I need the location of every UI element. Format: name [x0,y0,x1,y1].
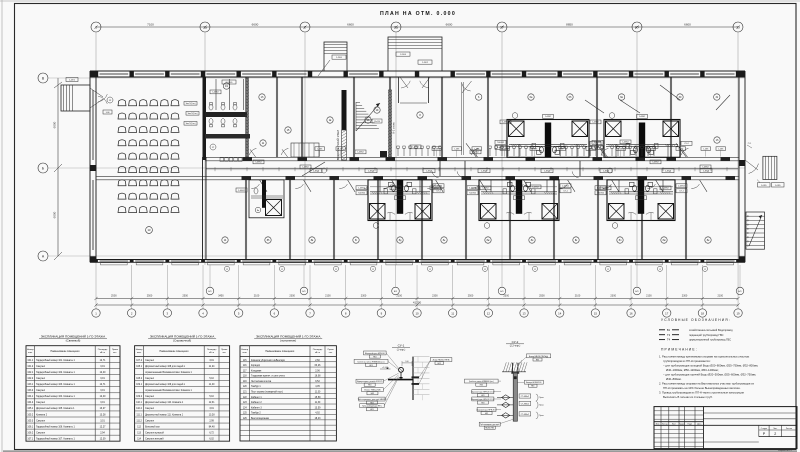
svg-text:Гребёнка литая НЛВ8000 (шт.): Гребёнка литая НЛВ8000 (шт.) [469,381,494,383]
svg-text:1-4Ф62: 1-4Ф62 [592,121,598,124]
svg-text:3. Провод трубопроводов из ПП: 3. Провод трубопроводов из ПП-Н через ст… [659,391,744,395]
svg-text:14: 14 [558,311,562,315]
svg-text:11,24: 11,24 [209,366,215,368]
svg-text:1а: 1а [203,26,207,30]
svg-text:1-4Ф6: 1-4Ф6 [454,147,459,150]
svg-text:Кол.уч: Кол.уч [662,423,668,425]
svg-text:Площадь: Площадь [207,349,217,351]
svg-text:12: 12 [429,269,431,271]
svg-text:1-4Ф62: 1-4Ф62 [622,141,628,144]
svg-text:2500: 2500 [468,294,474,297]
svg-text:НКЗ: НКЗ [373,356,376,358]
svg-text:хозяйственно-питьевой Водопров: хозяйственно-питьевой Водопровод [689,328,733,332]
svg-text:Номер: Номер [136,349,144,351]
svg-text:(2,3 черт.): (2,3 черт.) [510,346,521,348]
svg-text:6600: 6600 [446,22,453,26]
svg-text:Номер: Номер [27,349,35,351]
svg-text:СУ-2: СУ-2 [512,340,519,344]
svg-text:циркуляционный трубопровод ГВС: циркуляционный трубопровод ГВС [689,338,731,342]
svg-text:№док: №док [679,422,684,425]
svg-text:Приме: Приме [221,349,228,351]
svg-text:Туба нержавел. для труб НВ-810: Туба нержавел. для труб НВ-810 [358,399,387,401]
svg-text:1-4КкД: 1-4КкД [426,171,433,173]
svg-text:6,02: 6,02 [209,438,214,440]
svg-text:104.2: 104.2 [27,402,33,404]
svg-text:106.2: 106.2 [27,432,33,434]
svg-text:ПРИМЕЧАНИЕ:: ПРИМЕЧАНИЕ: [661,348,698,352]
svg-text:П-4Ф62: П-4Ф62 [597,192,605,195]
svg-text:2100: 2100 [325,294,331,297]
svg-text:1-4Ф6: 1-4Ф6 [703,147,708,150]
svg-text:107.1: 107.1 [27,438,33,440]
svg-text:1-4КкД: 1-4КкД [603,171,610,173]
svg-text:1-2Ф0: 1-2Ф0 [336,56,343,59]
svg-text:Санузел: Санузел [145,420,155,422]
svg-text:подающий трубопровод ГВС: подающий трубопровод ГВС [689,333,724,337]
svg-text:12: 12 [607,269,609,271]
svg-text:1-4Ф6: 1-4Ф6 [338,147,343,150]
svg-text:11: 11 [451,311,454,315]
svg-text:2100: 2100 [254,294,260,297]
svg-text:1-4Ф62: 1-4Ф62 [302,166,308,169]
svg-text:63,26: 63,26 [315,365,321,367]
svg-text:Зам.П (2 шт): Зам.П (2 шт) [186,123,196,125]
svg-text:19: 19 [736,26,740,30]
svg-text:11,30: 11,30 [315,402,321,404]
svg-text:Формат А1Х1: Формат А1Х1 [778,449,793,452]
svg-text:кВ. м: кВ. м [315,352,321,354]
svg-text:Двухместный номер 109 для люде: Двухместный номер 109 для людей с [145,383,186,386]
svg-text:3,01: 3,01 [100,402,105,404]
svg-text:2,94: 2,94 [100,432,105,434]
svg-text:1-4Ф62: 1-4Ф62 [392,187,398,190]
svg-text:1-0Ф5: 1-0Ф5 [761,184,767,187]
svg-text:2,06: 2,06 [315,370,320,372]
svg-text:102.2: 102.2 [27,378,33,380]
svg-text:НКЗ: НКЗ [369,365,372,367]
svg-text:19: 19 [736,311,740,315]
svg-text:1-4Ф62: 1-4Ф62 [358,187,366,190]
svg-text:10: 10 [415,311,419,315]
svg-text:(1 черт.): (1 черт.) [397,349,406,351]
svg-text:Тамбур 1: Тамбур 1 [251,386,261,388]
svg-text:1-4Ф62: 1-4Ф62 [238,189,246,192]
svg-text:1-4Ф62: 1-4Ф62 [482,187,488,190]
svg-text:Кабинет 3: Кабинет 3 [251,407,262,409]
svg-text:1-4КкД: 1-4КкД [703,171,710,173]
svg-text:2500: 2500 [503,294,509,297]
svg-text:трубопроводов из ПП-Н принимае: трубопроводов из ПП-Н принимается: [663,359,711,363]
svg-text:Номер: Номер [241,349,249,351]
svg-text:2100: 2100 [646,294,652,297]
svg-text:НКЗ: НКЗ [480,385,483,387]
svg-text:Фитинг НЛВ-0,7Ø0: Фитинг НЛВ-0,7Ø0 [364,389,380,392]
svg-text:Прим.: Прим. [539,397,545,399]
svg-text:Туба полипроп. для труб: Туба полипроп. для труб [480,424,499,426]
svg-text:12: 12 [226,269,228,271]
svg-text:Тамбур 2: Тамбур 2 [251,413,261,415]
svg-text:Наименование помещения: Наименование помещения [50,351,80,353]
svg-text:2-1Ф6: 2-1Ф6 [400,53,407,56]
svg-text:2300: 2300 [289,294,295,297]
svg-text:1-5Ф2: 1-5Ф2 [422,61,429,64]
svg-text:НВ-810 НКЗ: НВ-810 НКЗ [485,428,494,430]
svg-text:108.2: 108.2 [136,378,142,380]
svg-text:41200: 41200 [413,301,422,305]
svg-text:НКЗ: НКЗ [481,402,484,404]
svg-text:1-4Ф62: 1-4Ф62 [412,146,418,149]
svg-text:СТ-4Ф6х2: СТ-4Ф6х2 [521,402,529,405]
svg-text:12,39: 12,39 [100,438,106,440]
svg-text:12: 12 [372,269,374,271]
svg-text:4,92: 4,92 [315,413,320,415]
svg-text:109.1: 109.1 [136,384,142,386]
svg-text:Санузел: Санузел [36,420,46,422]
svg-text:П-4Ф62: П-4Ф62 [594,141,602,144]
svg-text:Санузел мужской: Санузел мужской [145,431,164,434]
svg-text:3,01: 3,01 [100,378,105,380]
svg-text:Приме: Приме [112,349,119,351]
svg-text:НКЗ: НКЗ [368,385,371,387]
svg-text:106.1: 106.1 [27,426,33,428]
svg-text:1-4Ф62: 1-4Ф62 [638,197,644,200]
svg-text:1. Расстояния между крепежными: 1. Расстояния между крепежными опорами н… [659,355,750,359]
svg-text:– для трубопроводов холодной: – для трубопроводов холодной Воды Ø20–80… [663,364,758,368]
svg-text:12: 12 [659,269,661,271]
svg-text:100: 100 [405,361,408,363]
svg-text:6600: 6600 [252,22,259,26]
svg-text:Гардеробный номер 104. Комнаты: Гардеробный номер 104. Комнаты 1 [36,395,75,398]
svg-text:Санузел женский: Санузел женский [145,437,164,440]
svg-text:Двухместный номер 105. Комната: Двухместный номер 105. Комната 1 [36,407,75,410]
svg-text:1-4Ф62: 1-4Ф62 [502,121,508,124]
svg-text:НКЗ: НКЗ [370,409,373,411]
svg-text:17: 17 [665,311,669,315]
svg-text:В1: В1 [667,328,671,332]
svg-text:7100: 7100 [147,22,154,26]
svg-text:Анкер НВ-810 ПЕЛЬ(у): Анкер НВ-810 ПЕЛЬ(у) [529,355,548,358]
svg-text:П-4Ф62: П-4Ф62 [469,192,477,195]
svg-text:110.1: 110.1 [136,402,142,404]
svg-text:пом.: пом. [242,352,247,354]
svg-text:2500: 2500 [539,294,545,297]
svg-text:12: 12 [335,269,337,271]
svg-text:(пояснение): (пояснение) [280,339,296,343]
svg-text:пом.: пом. [137,352,142,354]
svg-text:кВ. м: кВ. м [209,352,215,354]
svg-text:Прим.: Прим. [539,415,545,417]
svg-text:1-2Ф1: 1-2Ф1 [69,78,76,81]
svg-text:1-4Ф62: 1-4Ф62 [432,187,438,190]
svg-text:104.1: 104.1 [27,396,33,398]
svg-text:Прим.: Прим. [539,405,545,407]
svg-text:4,05: 4,05 [315,386,320,388]
svg-text:чан.: чан. [222,352,226,354]
svg-text:Санузел: Санузел [145,378,155,380]
svg-text:СУ-1: СУ-1 [398,344,405,348]
svg-text:13,59: 13,59 [315,407,321,409]
svg-text:Бельевой зал: Бельевой зал [145,425,160,428]
svg-text:Двухместный номер 108 для люде: Двухместный номер 108 для людей с [145,365,186,368]
svg-text:СТ-4Ф6х2: СТ-4Ф6х2 [521,395,529,398]
svg-text:Двухместный номер 110. Комната: Двухместный номер 110. Комната 1 [145,401,184,404]
svg-text:12,40: 12,40 [100,396,106,398]
svg-text:1-4Ф6: 1-4Ф6 [718,147,723,150]
svg-text:1-4КкД: 1-4КкД [313,171,320,173]
svg-text:8850: 8850 [566,22,573,26]
svg-text:Приме: Приме [328,349,335,351]
svg-text:103.2: 103.2 [27,390,33,392]
svg-text:6600: 6600 [684,22,691,26]
svg-text:(Справочной): (Справочной) [173,339,191,343]
svg-text:Пост охраны (пожарный пост): Пост охраны (пожарный пост) [251,390,283,393]
svg-text:15,59: 15,59 [315,397,321,399]
svg-text:8ж: 8ж [487,240,490,242]
svg-text:3,01: 3,01 [100,390,105,392]
svg-text:8м: 8м [663,240,666,242]
svg-text:105.2: 105.2 [27,414,33,416]
svg-text:16,08: 16,08 [315,376,321,378]
svg-text:2. Расстояния между опорами н: 2. Расстояния между опорами на Вертикаль… [659,382,755,386]
svg-text:2300: 2300 [682,294,688,297]
svg-text:Кабинет 2: Кабинет 2 [251,402,262,404]
svg-text:6,72: 6,72 [209,432,214,434]
svg-text:Коридор: Коридор [251,365,261,367]
svg-text:Ø40–800мм.: Ø40–800мм. [666,377,682,381]
svg-text:1-4КкД: 1-4КкД [481,171,488,173]
svg-text:Двухместный номер 111. Комната: Двухместный номер 111. Комната 1 [145,413,184,416]
svg-text:1-4Ф6: 1-4Ф6 [678,147,683,150]
svg-text:1-4Ф62: 1-4Ф62 [397,197,403,200]
svg-text:Санузел: Санузел [145,408,155,410]
svg-text:1-4КкД: 1-4КкД [368,171,375,173]
svg-text:Кабинет 1: Кабинет 1 [251,397,262,399]
svg-text:чан.: чан. [329,352,333,354]
svg-text:12: 12 [704,269,706,271]
svg-text:ограниченными Возможностями. К: ограниченными Возможностями. Комната 1 [145,372,192,374]
svg-text:Наименование помещения: Наименование помещения [159,351,189,353]
svg-text:6600: 6600 [347,22,354,26]
svg-text:3,01: 3,01 [100,420,105,422]
svg-text:19х150: 19х150 [374,121,380,123]
svg-text:1-4Ф62: 1-4Ф62 [472,151,478,154]
svg-text:1-4Ф62: 1-4Ф62 [469,187,477,190]
svg-text:13,27: 13,27 [100,408,106,410]
svg-text:8г: 8г [355,240,357,242]
svg-text:2300: 2300 [610,294,616,297]
svg-text:Лестничная клетка: Лестничная клетка [251,381,272,383]
svg-text:6000: 6000 [53,211,57,218]
svg-text:3,01: 3,01 [100,366,105,368]
svg-text:1-4Ф62: 1-4Ф62 [639,115,645,118]
svg-text:НКЗ: НКЗ [531,386,534,388]
svg-text:Санузел: Санузел [145,360,155,362]
svg-text:НКЗ: НКЗ [438,363,441,365]
svg-text:1-4Ф62: 1-4Ф62 [662,187,668,190]
svg-text:1-4Ф62: 1-4Ф62 [532,186,538,189]
svg-text:Санузел: Санузел [36,378,46,380]
svg-text:16: 16 [629,311,633,315]
svg-text:6000: 6000 [53,121,57,128]
svg-text:Гардеробный номер 102. Комнаты: Гардеробный номер 102. Комнаты 1 [36,371,75,374]
svg-text:111.1: 111.1 [136,414,142,416]
svg-text:84,48: 84,48 [209,426,215,428]
svg-text:Ø40–1000мм, Ø50–1200мм, Ø63–14: Ø40–1000мм, Ø50–1200мм, Ø63–1400мм; [666,368,719,372]
svg-text:1-4Ф62: 1-4Ф62 [357,151,363,154]
svg-text:12: 12 [487,311,491,315]
svg-text:3,01: 3,01 [209,408,214,410]
svg-text:Гребёнка литая НЛВ8000 (шт.): Гребёнка литая НЛВ8000 (шт.) [358,361,385,363]
svg-text:101.2: 101.2 [27,366,33,368]
svg-text:110.2: 110.2 [136,408,142,410]
svg-text:105.3: 105.3 [27,420,33,422]
svg-text:12: 12 [484,269,486,271]
svg-text:1-06: 1-06 [106,112,110,114]
svg-text:1-4КкД: 1-4КкД [665,171,672,173]
svg-text:107.2: 107.2 [136,360,142,362]
svg-text:109.2: 109.2 [136,396,142,398]
svg-text:пом.: пом. [28,352,33,354]
svg-text:108.1: 108.1 [136,366,142,368]
svg-text:Кладовая: Кладовая [251,370,262,372]
svg-text:НКЗ: НКЗ [371,393,374,395]
svg-text:105.1: 105.1 [27,408,33,410]
svg-text:13,28: 13,28 [209,414,215,416]
svg-text:Комната уборочного инВентаря: Комната уборочного инВентаря [251,360,286,362]
svg-text:чан.: чан. [113,352,117,354]
svg-text:Анкера НОВ-4100: Анкера НОВ-4100 [526,381,541,384]
svg-text:– для трубопроводов горячей В: – для трубопроводов горячей Воды Ø20–500… [663,373,756,377]
svg-text:1-4Ф62: 1-4Ф62 [516,197,522,200]
svg-text:К-1 стояк: К-1 стояк [392,122,396,134]
svg-text:Шаровой кран НРН-90: Шаровой кран НРН-90 [365,352,385,355]
svg-text:9,52: 9,52 [315,381,320,383]
svg-text:Шаровой кран НРН-90 1 1/4": Шаровой кран НРН-90 1 1/4" [471,398,495,401]
svg-text:ВОДОМЕРНЫЙ УЗЕЛ: ВОДОМЕРНЫЙ УЗЕЛ [336,130,340,161]
svg-text:12,31: 12,31 [209,402,215,404]
svg-text:Санузел: Санузел [36,432,46,434]
svg-text:2300: 2300 [361,294,367,297]
svg-text:ПЛАН НА ОТМ. 0.000: ПЛАН НА ОТМ. 0.000 [380,11,456,17]
svg-text:1-4Ф62: 1-4Ф62 [652,161,658,164]
svg-text:П-4Ф62: П-4Ф62 [497,141,505,144]
svg-text:2: 2 [774,432,776,436]
svg-text:1-4Ф62: 1-4Ф62 [212,91,218,94]
svg-text:Шаровой кран НРН-90 1": Шаровой кран НРН-90 1" [476,408,497,411]
svg-text:18: 18 [701,311,705,315]
svg-text:15: 15 [594,311,598,315]
svg-text:2100: 2100 [575,294,581,297]
svg-text:Наименование помещения: Наименование помещения [265,351,295,353]
svg-text:Санузел: Санузел [36,390,46,392]
svg-text:12,71: 12,71 [100,360,106,362]
svg-text:Санузел: Санузел [145,396,155,398]
svg-text:13,28: 13,28 [100,414,106,416]
svg-text:2а: 2а [394,26,398,30]
svg-text:2100: 2100 [396,294,402,297]
svg-text:ограниченными Возможностями. К: ограниченными Возможностями. Комната 1 [145,390,192,392]
svg-text:13: 13 [522,311,526,315]
svg-text:УСЛОВНЫЕ ОБОЗНАЧЕНИЯ:: УСЛОВНЫЕ ОБОЗНАЧЕНИЯ: [661,318,731,322]
svg-text:Санузел: Санузел [36,402,46,404]
svg-text:103.1: 103.1 [27,384,33,386]
svg-text:Циркуляцион. резьба Ф32-25: Циркуляцион. резьба Ф32-25 [357,380,382,383]
svg-text:1-4Ф62: 1-4Ф62 [255,161,261,164]
svg-text:НКЗ: НКЗ [536,359,539,361]
svg-text:2500: 2500 [147,294,153,297]
svg-text:2,60: 2,60 [315,360,320,362]
svg-text:Зам.П (2 шт): Зам.П (2 шт) [188,113,198,115]
svg-text:кВ. м: кВ. м [100,352,106,354]
svg-text:Шаровой кран НРН-90 1 1/4": Шаровой кран НРН-90 1 1/4" [471,391,495,394]
svg-text:2-4Ф62: 2-4Ф62 [678,185,686,188]
svg-text:Выполнять В гильзах из стальны: Выполнять В гильзах из стальных труб. [663,395,713,399]
svg-text:1-4КкД: 1-4КкД [544,171,551,173]
svg-text:3450: 3450 [218,294,224,297]
svg-text:12,40: 12,40 [100,372,106,374]
svg-text:102.1: 102.1 [27,372,33,374]
svg-text:1-0Ф5: 1-0Ф5 [775,184,781,187]
svg-text:Площадь: Площадь [313,349,323,351]
svg-text:Анкер НВ-810 ПЕЛЬ: Анкер НВ-810 ПЕЛЬ [433,359,451,362]
svg-text:Подп: Подп [688,423,693,425]
svg-text:12: 12 [534,269,536,271]
svg-text:Санузел: Санузел [36,366,46,368]
svg-text:2-2Ф05: 2-2Ф05 [226,81,234,84]
svg-text:2,99: 2,99 [209,420,214,422]
svg-text:СТ-4Ф6х2: СТ-4Ф6х2 [521,413,529,416]
svg-text:Стадия: Стадия [761,428,767,430]
svg-text:Гардеробный номер 107. Комнаты: Гардеробный номер 107. Комнаты 1 [36,437,75,440]
svg-text:101.1: 101.1 [27,360,33,362]
svg-text:2500: 2500 [111,294,117,297]
svg-text:1-4Ф6: 1-4Ф6 [317,147,322,150]
svg-text:Гладьевая прачеч. и узел учета: Гладьевая прачеч. и узел учета [251,376,285,378]
svg-text:2300: 2300 [432,294,438,297]
svg-text:2100: 2100 [717,294,723,297]
svg-text:Туба разводящая НТС: Туба разводящая НТС [362,406,382,408]
svg-text:11,40: 11,40 [209,384,215,386]
svg-text:Вентиляционная: Вентиляционная [251,418,270,420]
svg-text:Лист: Лист [672,423,676,425]
svg-text:1-4Ф62: 1-4Ф62 [702,166,708,169]
svg-text:2500: 2500 [182,294,188,297]
svg-text:5,10: 5,10 [209,378,214,380]
svg-text:(Связевой): (Связевой) [66,339,81,343]
svg-text:3,01: 3,01 [209,360,214,362]
svg-text:12,71: 12,71 [100,384,106,386]
svg-text:НКЗ: НКЗ [485,413,488,415]
svg-text:Гардеробный номер 101. Комнаты: Гардеробный номер 101. Комнаты 1 [36,359,75,362]
svg-text:12,27: 12,27 [100,426,106,428]
svg-text:П-4Ф62: П-4Ф62 [358,192,366,195]
svg-text:111.2: 111.2 [136,420,142,422]
svg-text:Лист: Лист [773,428,777,430]
svg-text:Гардеробный номер 106. Комнаты: Гардеробный номер 106. Комнаты 1 [36,425,75,428]
svg-text:1-4Ф62: 1-4Ф62 [602,187,608,190]
svg-text:Комната 2: Комната 2 [36,414,48,416]
svg-text:18,43: 18,43 [315,418,321,420]
svg-text:5,10: 5,10 [209,396,214,398]
svg-text:12: 12 [281,269,283,271]
svg-text:11,30: 11,30 [315,391,321,393]
svg-text:Площадь: Площадь [98,349,108,351]
svg-text:Гардеробный номер 103. Комнаты: Гардеробный номер 103. Комнаты 1 [36,383,75,386]
svg-text:2-4Ф62: 2-4Ф62 [562,185,570,188]
svg-text:Листов: Листов [786,428,792,430]
svg-text:ПП-Н принимать на 10% больше В: ПП-Н принимать на 10% больше Вышеприведе… [663,386,741,390]
svg-text:1-4Ф62: 1-4Ф62 [545,115,551,118]
